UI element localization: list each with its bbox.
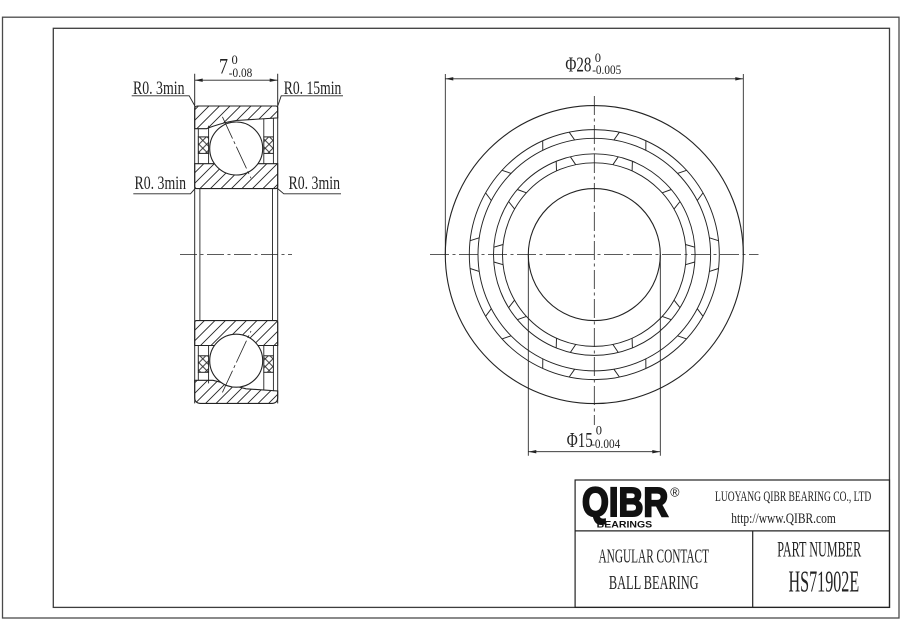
svg-text:HS71902E: HS71902E: [789, 564, 860, 599]
svg-text:R0. 3min: R0. 3min: [135, 173, 187, 194]
svg-text:0: 0: [596, 423, 602, 437]
svg-text:-0.08: -0.08: [229, 66, 253, 80]
svg-text:http://www.QIBR.com: http://www.QIBR.com: [731, 511, 836, 527]
svg-text:®: ®: [670, 486, 680, 500]
svg-text:BALL BEARING: BALL BEARING: [609, 572, 699, 594]
svg-text:0: 0: [232, 53, 238, 67]
svg-text:BEARINGS: BEARINGS: [597, 520, 653, 531]
svg-text:-0.005: -0.005: [592, 63, 621, 77]
svg-text:LUOYANG QIBR BEARING CO., LTD: LUOYANG QIBR BEARING CO., LTD: [715, 489, 871, 505]
svg-text:Φ15: Φ15: [567, 428, 593, 452]
svg-text:Φ28: Φ28: [565, 53, 591, 77]
svg-text:-0.004: -0.004: [591, 437, 621, 451]
svg-text:PART NUMBER: PART NUMBER: [777, 537, 861, 562]
svg-text:ANGULAR CONTACT: ANGULAR CONTACT: [599, 545, 710, 567]
svg-text:7: 7: [219, 55, 228, 79]
svg-text:QIBR: QIBR: [582, 479, 668, 525]
svg-text:R0. 3min: R0. 3min: [289, 173, 341, 194]
